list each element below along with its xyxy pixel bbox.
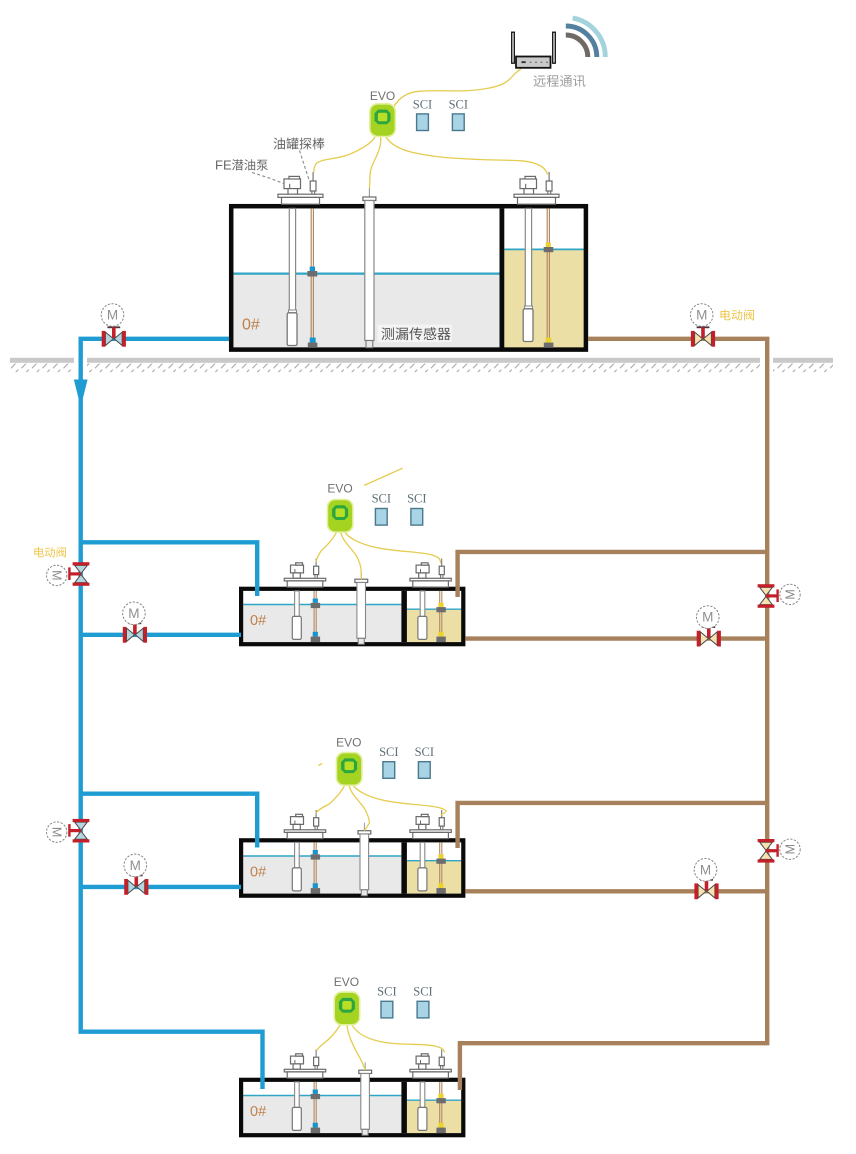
svg-text:FE: FE <box>215 158 232 173</box>
svg-text:M: M <box>783 589 797 599</box>
svg-text:M: M <box>49 827 63 837</box>
svg-text:EVO: EVO <box>334 975 359 989</box>
svg-text:EVO: EVO <box>327 481 352 495</box>
svg-text:M: M <box>107 308 118 323</box>
svg-text:SCI: SCI <box>413 97 432 111</box>
svg-text:M: M <box>700 862 711 877</box>
svg-text:SCI: SCI <box>377 984 396 998</box>
svg-text:M: M <box>128 606 139 621</box>
svg-text:0#: 0# <box>250 865 266 881</box>
svg-text:SCI: SCI <box>379 745 398 759</box>
svg-text:SCI: SCI <box>372 492 391 506</box>
svg-text:SCI: SCI <box>413 984 432 998</box>
svg-text:M: M <box>49 570 63 580</box>
svg-text:0#: 0# <box>250 1104 266 1120</box>
svg-text:EVO: EVO <box>336 735 361 749</box>
svg-text:SCI: SCI <box>407 492 426 506</box>
svg-text:SCI: SCI <box>415 745 434 759</box>
svg-text:M: M <box>702 610 713 625</box>
svg-text:EVO: EVO <box>370 89 395 103</box>
svg-text:M: M <box>783 844 797 854</box>
svg-text:0#: 0# <box>250 613 266 629</box>
svg-text:SCI: SCI <box>449 97 468 111</box>
svg-text:M: M <box>130 858 141 873</box>
svg-text:0#: 0# <box>242 317 260 334</box>
svg-text:M: M <box>696 308 707 323</box>
